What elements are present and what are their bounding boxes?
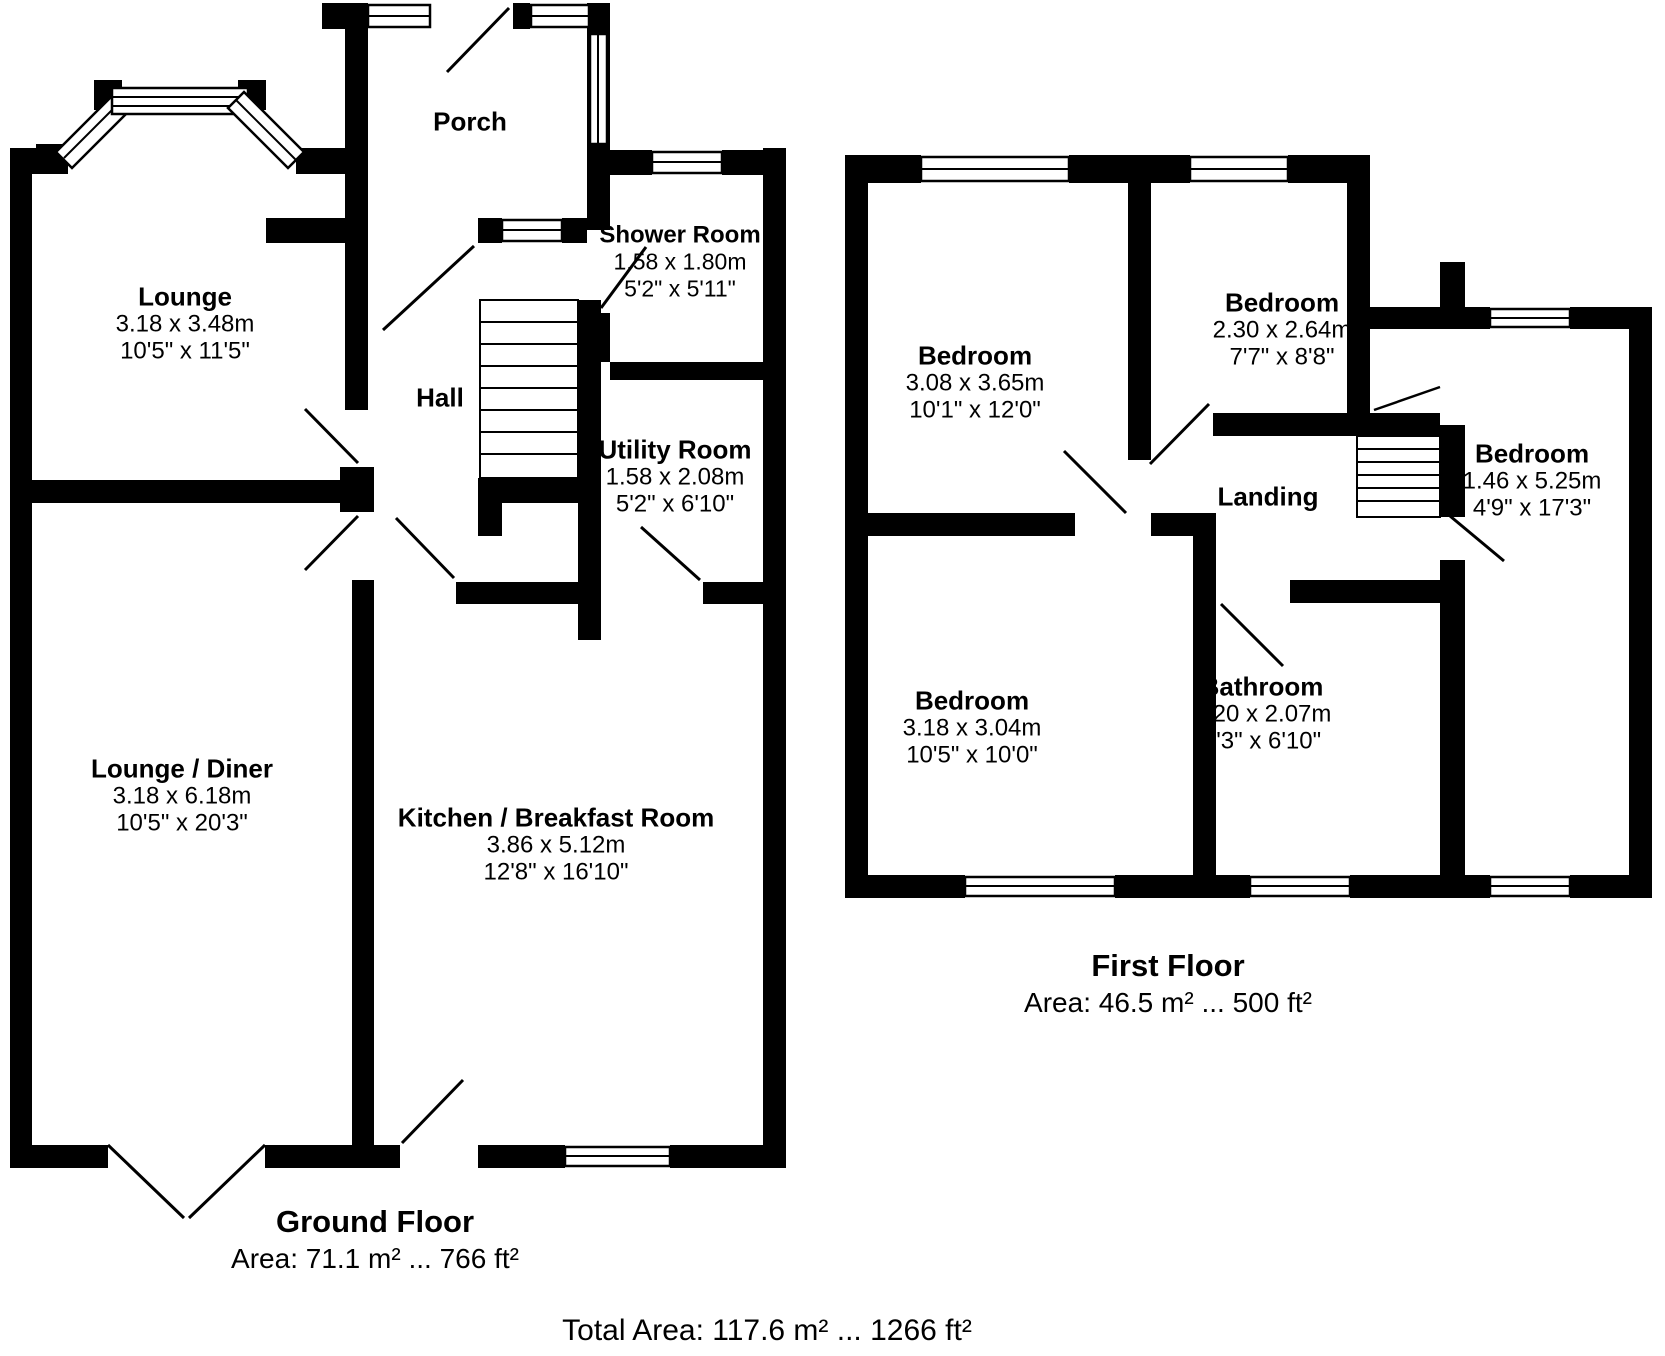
ground-floor-windows: [56, 5, 722, 1166]
room-dims-imperial: 5'2" x 5'11": [599, 276, 760, 303]
room-label-bedroom-right: Bedroom 1.46 x 5.25m 4'9" x 17'3": [1463, 441, 1602, 522]
room-dims-metric: 2.30 x 2.64m: [1213, 317, 1352, 344]
room-name: Shower Room: [599, 222, 760, 249]
ground-floor-walls: [10, 3, 786, 1168]
room-name: Landing: [1217, 484, 1318, 511]
first-floor-title: First Floor: [1091, 948, 1244, 984]
room-name: Bathroom: [1193, 674, 1332, 701]
room-label-porch: Porch: [433, 109, 507, 136]
room-label-landing: Landing: [1217, 484, 1318, 511]
room-dims-metric: 3.08 x 3.65m: [906, 370, 1045, 397]
room-dims-metric: 2.20 x 2.07m: [1193, 701, 1332, 728]
room-dims-imperial: 12'8" x 16'10": [398, 859, 714, 886]
room-dims-imperial: 10'5" x 11'5": [116, 338, 255, 365]
floorplan-drawing: [0, 0, 1665, 1356]
ground-floor-plan: [10, 3, 786, 1218]
room-label-bedroom-1: Bedroom 3.08 x 3.65m 10'1" x 12'0": [906, 343, 1045, 424]
room-dims-imperial: 10'5" x 10'0": [903, 742, 1042, 769]
room-label-utility-room: Utility Room 1.58 x 2.08m 5'2" x 6'10": [598, 437, 751, 518]
room-dims-metric: 3.18 x 3.04m: [903, 715, 1042, 742]
room-name: Bedroom: [903, 688, 1042, 715]
room-dims-imperial: 7'3" x 6'10": [1193, 728, 1332, 755]
room-name: Utility Room: [598, 437, 751, 464]
room-name: Hall: [416, 385, 464, 412]
room-dims-imperial: 10'5" x 20'3": [91, 810, 273, 837]
room-label-shower-room: Shower Room 1.58 x 1.80m 5'2" x 5'11": [599, 222, 760, 303]
room-name: Lounge / Diner: [91, 756, 273, 783]
ground-floor-stairs: [480, 300, 578, 478]
room-dims-metric: 1.46 x 5.25m: [1463, 468, 1602, 495]
first-floor-walls: [845, 155, 1652, 898]
ground-floor-title: Ground Floor: [276, 1204, 474, 1240]
room-dims-imperial: 5'2" x 6'10": [598, 491, 751, 518]
room-label-kitchen: Kitchen / Breakfast Room 3.86 x 5.12m 12…: [398, 805, 714, 886]
floorplan-page: Lounge 3.18 x 3.48m 10'5" x 11'5" Porch …: [0, 0, 1665, 1356]
first-floor-area: Area: 46.5 m² ... 500 ft²: [1024, 987, 1312, 1019]
room-label-hall: Hall: [416, 385, 464, 412]
room-label-bedroom-3: Bedroom 3.18 x 3.04m 10'5" x 10'0": [903, 688, 1042, 769]
room-label-bedroom-2: Bedroom 2.30 x 2.64m 7'7" x 8'8": [1213, 290, 1352, 371]
bay-window-top: [112, 88, 248, 114]
room-name: Kitchen / Breakfast Room: [398, 805, 714, 832]
room-label-bathroom: Bathroom 2.20 x 2.07m 7'3" x 6'10": [1193, 674, 1332, 755]
room-name: Bedroom: [906, 343, 1045, 370]
ground-floor-area: Area: 71.1 m² ... 766 ft²: [231, 1243, 519, 1275]
room-dims-imperial: 7'7" x 8'8": [1213, 344, 1352, 371]
room-name: Porch: [433, 109, 507, 136]
room-label-lounge: Lounge 3.18 x 3.48m 10'5" x 11'5": [116, 284, 255, 365]
room-dims-imperial: 10'1" x 12'0": [906, 397, 1045, 424]
room-name: Lounge: [116, 284, 255, 311]
room-name: Bedroom: [1213, 290, 1352, 317]
room-name: Bedroom: [1463, 441, 1602, 468]
ground-floor-door-swings: [108, 8, 700, 1218]
room-label-lounge-diner: Lounge / Diner 3.18 x 6.18m 10'5" x 20'3…: [91, 756, 273, 837]
room-dims-metric: 1.58 x 2.08m: [598, 464, 751, 491]
room-dims-imperial: 4'9" x 17'3": [1463, 495, 1602, 522]
first-floor-plan: [845, 155, 1652, 898]
room-dims-metric: 3.18 x 3.48m: [116, 311, 255, 338]
room-dims-metric: 3.18 x 6.18m: [91, 783, 273, 810]
room-dims-metric: 1.58 x 1.80m: [599, 249, 760, 276]
room-dims-metric: 3.86 x 5.12m: [398, 832, 714, 859]
total-area: Total Area: 117.6 m² ... 1266 ft²: [562, 1314, 972, 1348]
